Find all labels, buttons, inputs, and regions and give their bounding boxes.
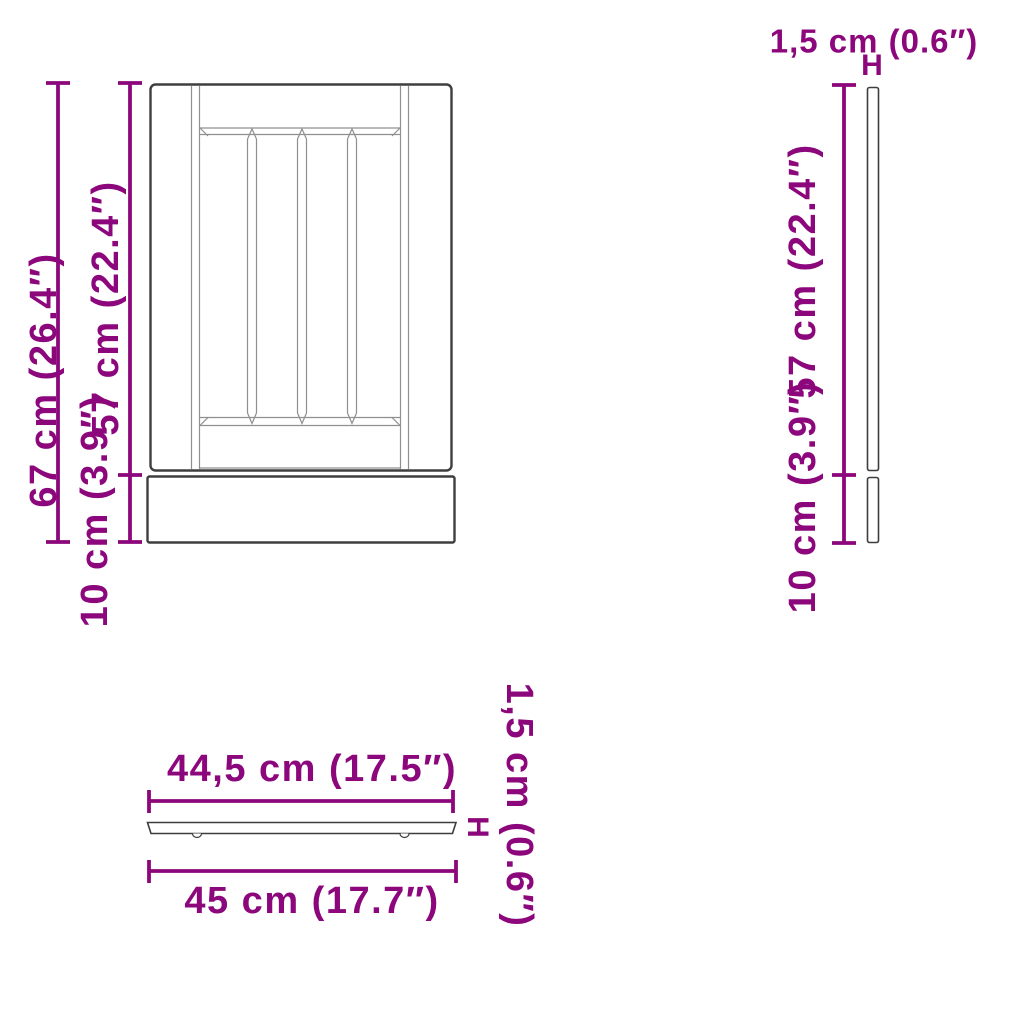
side-door-height-label: 57 cm (22.4″) bbox=[784, 143, 822, 398]
dimension-line-top-inner-width bbox=[149, 790, 453, 813]
front-total-height-label: 67 cm (26.4″) bbox=[25, 252, 63, 507]
top-thickness-marker: H bbox=[462, 816, 492, 838]
top-view-panel bbox=[148, 823, 457, 838]
hinge-notch-left bbox=[193, 834, 202, 838]
dimension-line-side-door-and-plinth bbox=[832, 85, 856, 543]
side-view-door-panel bbox=[868, 88, 879, 471]
front-plinth-height-label: 10 cm (3.9″) bbox=[76, 395, 114, 628]
top-inner-width-label: 44,5 cm (17.5″) bbox=[167, 750, 457, 788]
side-thickness-marker: H bbox=[861, 51, 883, 81]
side-view-plinth-panel bbox=[868, 478, 879, 543]
front-view-door-outline bbox=[151, 85, 452, 471]
side-plinth-height-label: 10 cm (3.9″) bbox=[784, 381, 822, 614]
dimension-diagram: 67 cm (26.4″) 57 cm (22.4″) 10 cm (3.9″)… bbox=[0, 0, 1024, 1024]
top-total-width-label: 45 cm (17.7″) bbox=[184, 882, 439, 920]
front-view-plinth-outline bbox=[148, 477, 455, 543]
top-thickness-label: 1,5 cm (0.6″) bbox=[500, 683, 538, 928]
hinge-notch-right bbox=[400, 834, 409, 838]
